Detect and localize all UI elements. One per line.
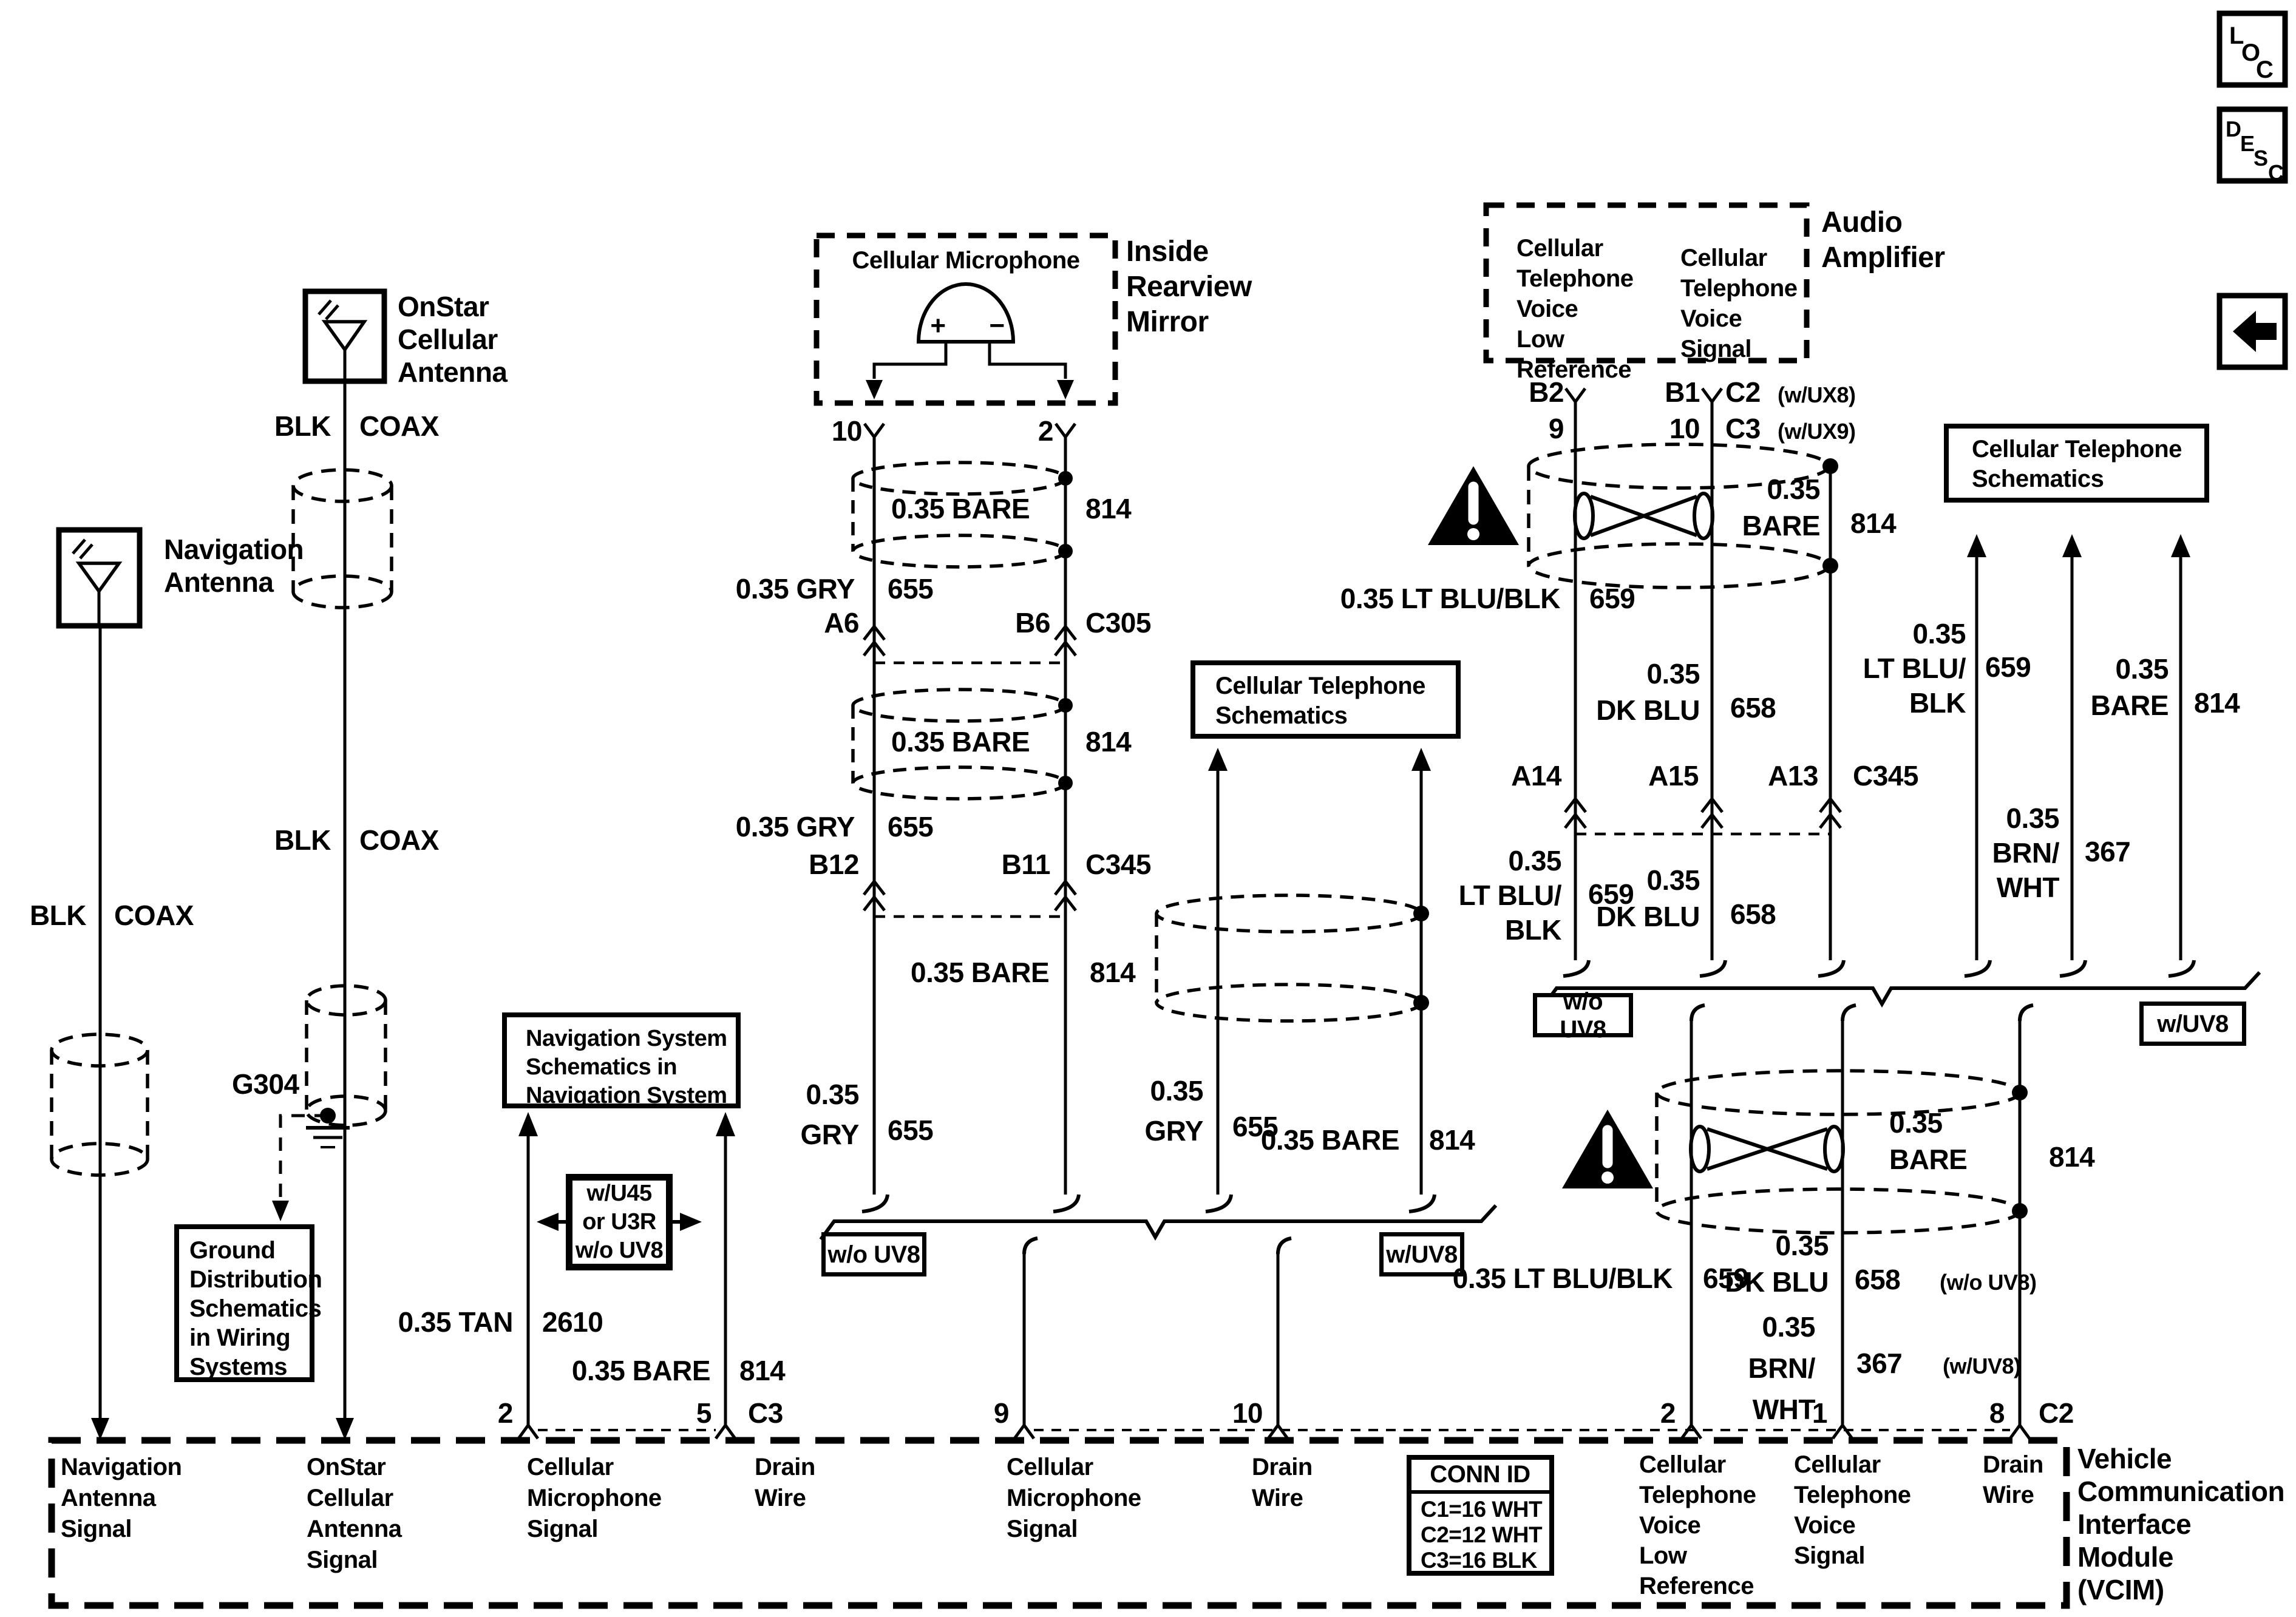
warning-icon-1 xyxy=(1428,466,1519,545)
v814-nav-label: 814 xyxy=(739,1355,785,1387)
bare-r3-label: 0.35 BARE xyxy=(2091,651,2169,724)
navigation-antenna-label: Navigation Antenna xyxy=(164,533,304,598)
back-arrow-icon[interactable] xyxy=(2220,296,2285,367)
vcim-c6-label: Drain Wire xyxy=(1252,1452,1313,1514)
v814-4-label: 814 xyxy=(1429,1124,1475,1156)
c305-label: C305 xyxy=(1085,607,1151,639)
b1-label: B1 xyxy=(1665,376,1700,408)
dkblu-r2-label: 0.35 DK BLU xyxy=(1596,862,1700,935)
ground-box-label: Ground Distribution Schematics in Wiring… xyxy=(189,1236,322,1381)
brnwht-r-label: 0.35 BRN/ WHT xyxy=(1992,801,2059,905)
connector-c345-mic xyxy=(864,881,1076,917)
g304-label: G304 xyxy=(232,1068,299,1100)
w-uv8-1-label: w/UV8 xyxy=(2139,1002,2246,1046)
desc-c-label: C xyxy=(2268,160,2284,185)
v814-r1-label: 814 xyxy=(1850,507,1896,540)
blk1-label: BLK xyxy=(274,410,331,442)
ltblublk-r3-label: 0.35 LT BLU/ BLK xyxy=(1863,617,1966,720)
pin10-amp-label: 10 xyxy=(1669,413,1700,445)
nav-schem-label: Navigation System Schematics in Navigati… xyxy=(526,1025,727,1110)
wo-uv8-1-label: w/o UV8 xyxy=(1533,993,1633,1037)
amp-right-pin-label: Cellular Telephone Voice Signal xyxy=(1680,243,1798,364)
b11-label: B11 xyxy=(1002,849,1050,881)
dkblu-r1-label: 0.35 DK BLU xyxy=(1596,656,1700,728)
v814-l2-label: 814 xyxy=(2049,1141,2094,1173)
desc-d-label: D xyxy=(2226,117,2241,141)
vcim-c8-label: Cellular Telephone Voice Signal xyxy=(1794,1449,1911,1571)
c2w-p-label: (w/UX8) xyxy=(1778,382,1856,407)
gry655-4-label: 0.35 GRY xyxy=(1145,1071,1203,1151)
b12-label: B12 xyxy=(809,849,859,881)
onstar-coax-wire xyxy=(336,381,354,1440)
conn-c1-label: C1=16 WHT xyxy=(1421,1497,1542,1523)
bare814-2-label: 0.35 BARE xyxy=(891,726,1030,758)
microphone-icon xyxy=(866,284,1074,399)
conn-id-label: CONN ID xyxy=(1430,1460,1530,1488)
wo-uv8-p-label: (w/o UV8) xyxy=(1940,1270,2037,1295)
onstar-antenna-icon xyxy=(305,291,384,381)
vcim-title-label: Vehicle Communication Interface Module (… xyxy=(2077,1442,2284,1606)
v814-2-label: 814 xyxy=(1085,726,1131,758)
a13-label: A13 xyxy=(1768,760,1818,792)
wu45-label: w/U45 or U3R w/o UV8 xyxy=(568,1176,670,1268)
pin2-mic-label: 2 xyxy=(1038,415,1053,447)
brnwht-l-label: 0.35 BRN/ WHT xyxy=(1748,1306,1815,1430)
amp-left-pin-label: Cellular Telephone Voice Low Reference xyxy=(1517,233,1634,385)
v814-3-label: 814 xyxy=(1090,957,1135,989)
vcim-c4-label: Drain Wire xyxy=(755,1452,815,1514)
blk2-label: BLK xyxy=(274,824,331,856)
pin9-amp-label: 9 xyxy=(1549,413,1564,445)
warning-icon-2 xyxy=(1562,1110,1653,1188)
wo-uv8-2-label: w/o UV8 xyxy=(821,1232,926,1276)
v658-r2-label: 658 xyxy=(1730,898,1776,931)
bare814-1-label: 0.35 BARE xyxy=(891,493,1030,525)
pin2-l-label: 2 xyxy=(498,1397,513,1429)
gry655-2-label: 0.35 GRY xyxy=(736,811,855,843)
vcim-c9-label: Drain Wire xyxy=(1983,1449,2043,1510)
ltblublk-r2-label: 0.35 LT BLU/ BLK xyxy=(1459,844,1561,947)
v658-l2-label: 658 xyxy=(1855,1264,1900,1296)
v659-l-label: 659 xyxy=(1703,1263,1748,1295)
audio-amplifier-label: Audio Amplifier xyxy=(1821,205,1945,276)
a6-label: A6 xyxy=(824,607,859,639)
w-uv8-2-label: w/UV8 xyxy=(1379,1232,1464,1276)
v655-1-label: 655 xyxy=(888,573,933,605)
pin9-label: 9 xyxy=(994,1397,1009,1429)
v659-r3-label: 659 xyxy=(1985,651,2031,683)
desc-e-label: E xyxy=(2240,131,2255,156)
twisted-pair-2 xyxy=(1691,1127,1843,1171)
v655-3-label: 655 xyxy=(888,1114,933,1147)
v814-r3-label: 814 xyxy=(2194,687,2240,719)
cts-mid-label: Cellular Telephone Schematics xyxy=(1215,671,1425,731)
bare-nav-label: 0.35 BARE xyxy=(572,1355,710,1387)
inside-mirror-label: Inside Rearview Mirror xyxy=(1126,234,1252,340)
coax1-label: COAX xyxy=(359,410,439,442)
b6-label: B6 xyxy=(1015,607,1050,639)
navigation-antenna-icon xyxy=(59,530,140,626)
bare-l2-label: 0.35 BARE xyxy=(1889,1105,1967,1178)
cts-right-label: Cellular Telephone Schematics xyxy=(1972,435,2182,494)
v655-2-label: 655 xyxy=(888,811,933,843)
c2-r-label: C2 xyxy=(2039,1397,2074,1429)
tan2610-label: 0.35 TAN xyxy=(398,1306,513,1338)
blk3-label: BLK xyxy=(30,900,86,932)
vcim-c7-label: Cellular Telephone Voice Low Reference xyxy=(1639,1449,1756,1601)
pin5-label: 5 xyxy=(696,1397,712,1429)
gry655-3-label: 0.35 GRY xyxy=(801,1074,859,1154)
c3w-p-label: (w/UX9) xyxy=(1778,419,1856,444)
vcim-c1-label: Navigation Antenna Signal xyxy=(61,1452,182,1545)
bare-r1-label: 0.35 BARE xyxy=(1742,471,1820,544)
bare814-3-label: 0.35 BARE xyxy=(911,957,1049,989)
mic-plus-label: + xyxy=(930,311,945,342)
pin8-label: 8 xyxy=(1989,1397,2005,1429)
c3w-label: C3 xyxy=(1725,413,1761,445)
pin10-mic-label: 10 xyxy=(832,415,862,447)
w-uv8-p-label: (w/UV8) xyxy=(1943,1354,2021,1378)
v367-r-label: 367 xyxy=(2085,836,2130,868)
c345-mic-label: C345 xyxy=(1085,849,1151,881)
pin10-l-label: 10 xyxy=(1232,1397,1263,1429)
coax3-label: COAX xyxy=(114,900,194,932)
mic-minus-label: − xyxy=(989,311,1004,342)
c345-r-label: C345 xyxy=(1853,760,1918,792)
vcim-c2-label: OnStar Cellular Antenna Signal xyxy=(307,1452,402,1576)
loc-c-label: C xyxy=(2256,56,2273,84)
desc-s-label: S xyxy=(2254,146,2268,171)
shield-mid xyxy=(1156,895,1421,1021)
twisted-pair-1 xyxy=(1575,493,1713,538)
vcim-c5-label: Cellular Microphone Signal xyxy=(1007,1452,1141,1545)
ltblublk-l-label: 0.35 LT BLU/BLK xyxy=(1453,1263,1673,1295)
conn-c3-label: C3=16 BLK xyxy=(1421,1548,1537,1574)
bare814-4-label: 0.35 BARE xyxy=(1261,1124,1399,1156)
conn-c2-label: C2=12 WHT xyxy=(1421,1522,1542,1548)
v814-1-label: 814 xyxy=(1085,493,1131,525)
gry655-1-label: 0.35 GRY xyxy=(736,573,855,605)
b2-label: B2 xyxy=(1529,376,1564,408)
onstar-antenna-label: OnStar Cellular Antenna xyxy=(398,290,508,388)
v367-l-label: 367 xyxy=(1856,1347,1902,1380)
v2610-label: 2610 xyxy=(542,1306,603,1338)
c3-l-label: C3 xyxy=(748,1397,783,1429)
a14-label: A14 xyxy=(1511,760,1561,792)
a15-label: A15 xyxy=(1648,760,1699,792)
wiring-diagram: OnStar Cellular AntennaNavigation Antenn… xyxy=(0,0,2296,1617)
coax2-label: COAX xyxy=(359,824,439,856)
cellular-microphone-label: Cellular Microphone xyxy=(852,246,1080,274)
ltblublk-r1-label: 0.35 LT BLU/BLK xyxy=(1340,583,1560,615)
shield-onstar-upper xyxy=(293,470,392,608)
vcim-c3-label: Cellular Microphone Signal xyxy=(527,1452,662,1545)
v658-r1-label: 658 xyxy=(1730,692,1776,724)
pin2-r-label: 2 xyxy=(1660,1397,1676,1429)
c2w-label: C2 xyxy=(1725,376,1761,408)
pin1-label: 1 xyxy=(1812,1397,1827,1429)
v659-r1-label: 659 xyxy=(1589,583,1635,615)
connector-c345-amp xyxy=(1565,799,1841,834)
